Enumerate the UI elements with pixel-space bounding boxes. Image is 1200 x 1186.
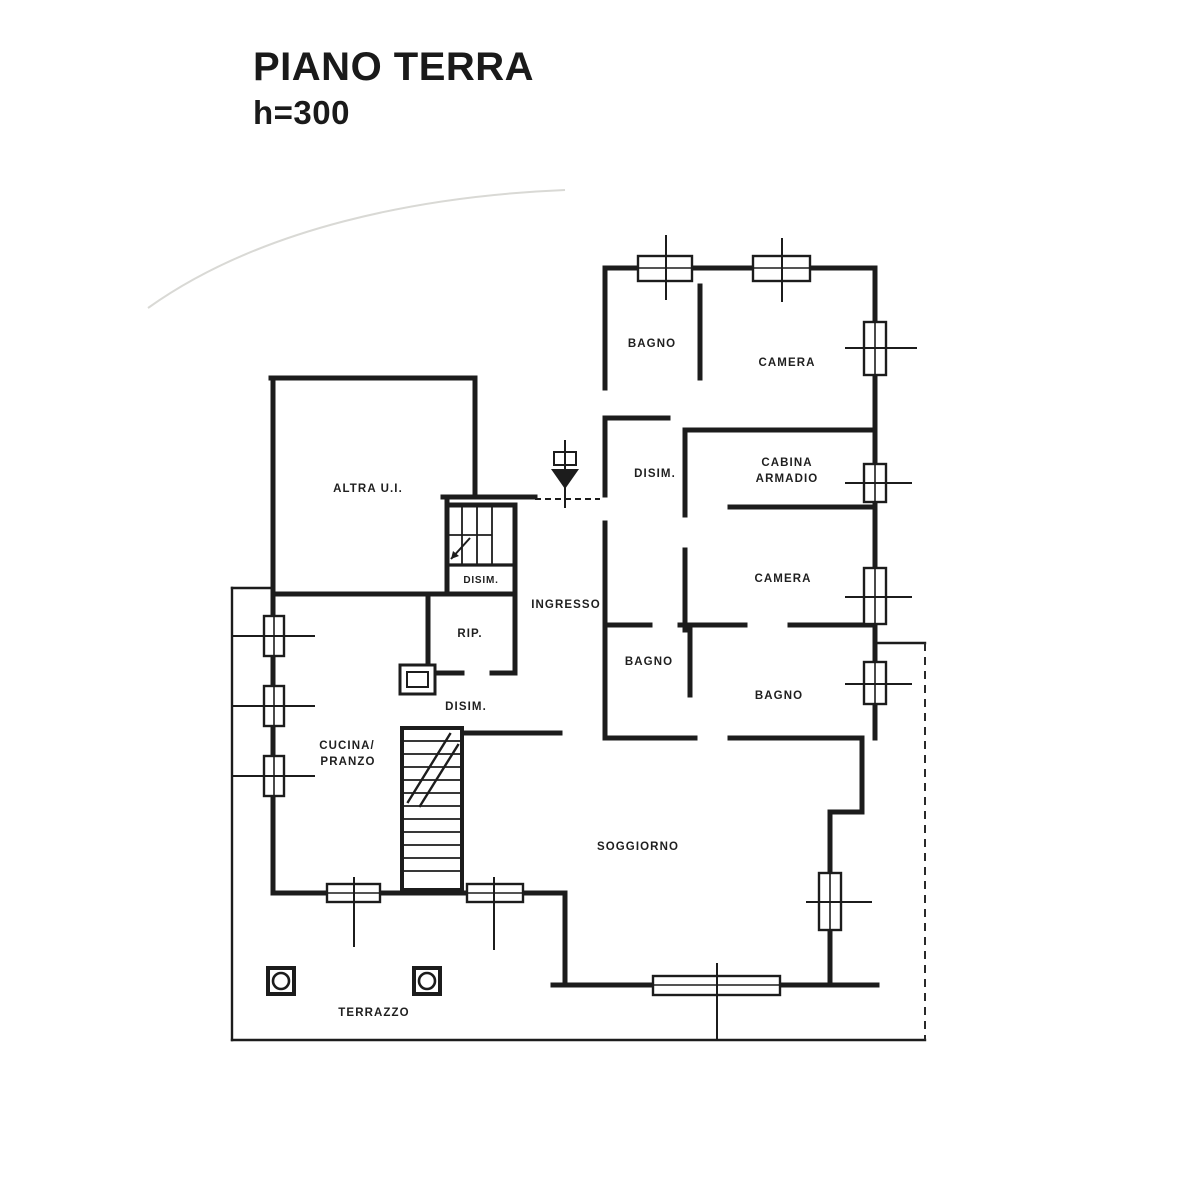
room-label-cabina-armadio-1: CABINA [761, 457, 812, 469]
room-label-ripostiglio: RIP. [457, 628, 482, 640]
window-axis-ticks [232, 235, 917, 1040]
terrace [232, 588, 925, 1040]
room-label-cabina-armadio-2: ARMADIO [756, 473, 819, 485]
room-label-disimpegno-giorno: DISIM. [445, 701, 487, 713]
room-label-terrazzo: TERRAZZO [338, 1007, 409, 1019]
room-label-bagno-nord: BAGNO [628, 338, 676, 350]
room-label-camera-nord: CAMERA [758, 357, 815, 369]
entrance-marker [535, 440, 600, 508]
room-label-bagno-est: BAGNO [755, 690, 803, 702]
room-label-bagno-centro: BAGNO [625, 656, 673, 668]
room-label-ingresso: INGRESSO [531, 599, 601, 611]
plan-title: PIANO TERRA [253, 45, 534, 89]
room-label-disimpegno-ingresso: DISIM. [463, 575, 498, 586]
room-label-cucina-1: CUCINA/ [319, 740, 375, 752]
small-staircase [447, 505, 492, 565]
main-staircase [402, 728, 462, 890]
room-label-cucina-2: PRANZO [320, 756, 375, 768]
plan-height-note: h=300 [253, 94, 350, 131]
walls [271, 268, 877, 985]
scanned-floor-plan-page: PIANO TERRA h=300 BAGNO CAMERA DISIM. CA… [0, 0, 1200, 1186]
scan-artifact-line [148, 190, 565, 308]
floor-plan-drawing: PIANO TERRA h=300 BAGNO CAMERA DISIM. CA… [0, 0, 1200, 1186]
room-label-camera-est: CAMERA [754, 573, 811, 585]
room-label-soggiorno: SOGGIORNO [597, 841, 679, 853]
terrace-pillar [268, 968, 294, 994]
terrace-pillar [414, 968, 440, 994]
room-label-altra-ui: ALTRA U.I. [333, 483, 403, 495]
room-label-disimpegno-notte: DISIM. [634, 468, 676, 480]
